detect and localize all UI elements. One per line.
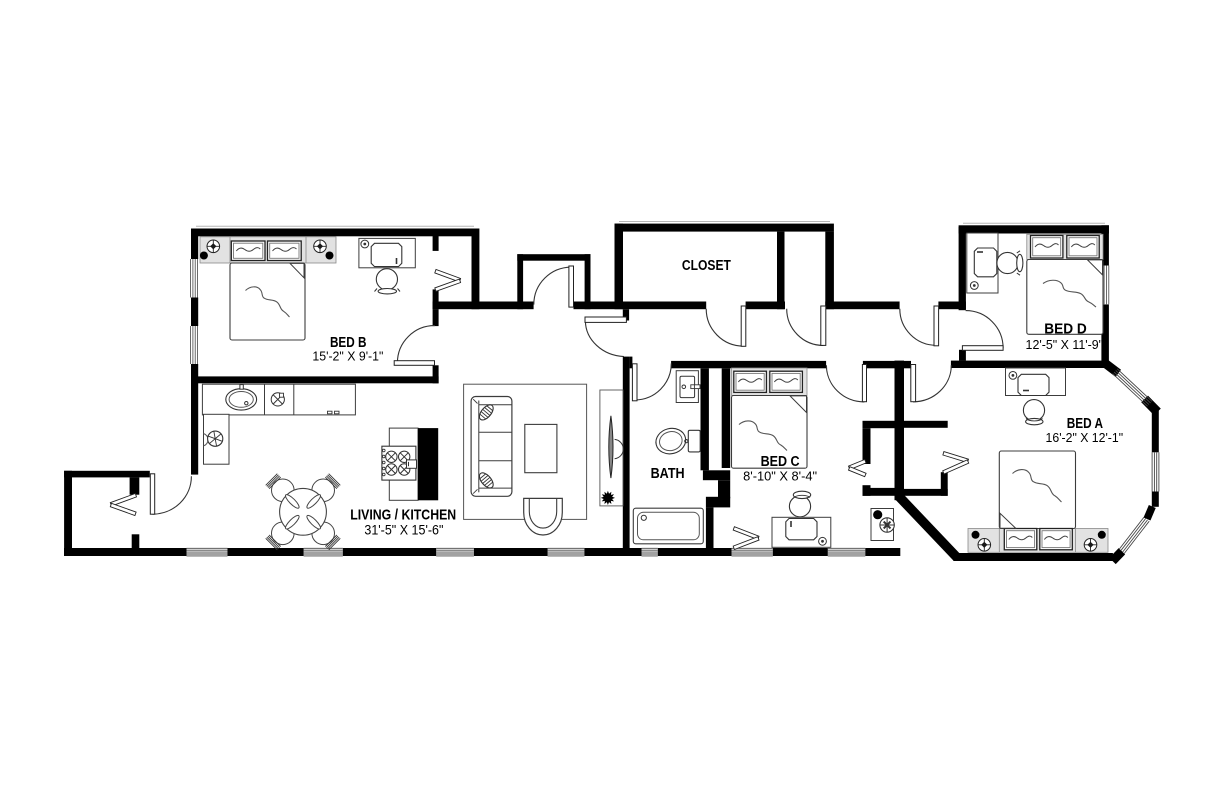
svg-text:CLOSET: CLOSET — [682, 258, 731, 274]
svg-text:BED D: BED D — [1044, 322, 1087, 338]
svg-text:16'-2" X 12'-1": 16'-2" X 12'-1" — [1046, 430, 1124, 445]
svg-text:12'-5" X 11'-9": 12'-5" X 11'-9" — [1026, 337, 1104, 352]
svg-text:BATH: BATH — [651, 466, 685, 482]
svg-text:15'-2" X 9'-1": 15'-2" X 9'-1" — [312, 349, 383, 364]
svg-text:8'-10" X 8'-4": 8'-10" X 8'-4" — [743, 469, 817, 484]
svg-text:LIVING / KITCHEN: LIVING / KITCHEN — [350, 508, 456, 524]
svg-text:BED C: BED C — [761, 454, 800, 470]
svg-text:31'-5" X 15'-6": 31'-5" X 15'-6" — [364, 523, 443, 538]
